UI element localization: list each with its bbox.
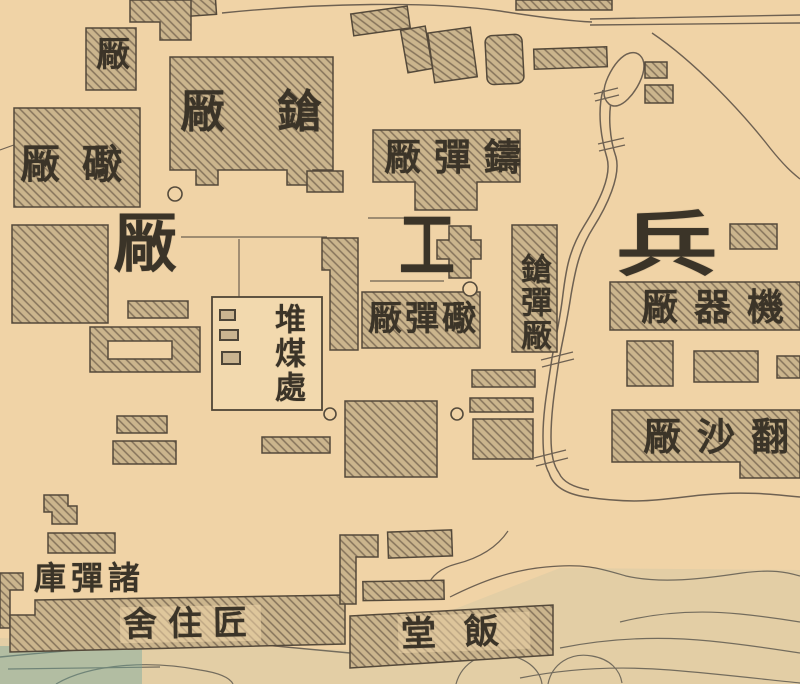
building-bar-magazine (48, 533, 115, 553)
stream-tick-3 (541, 352, 574, 367)
label-small-factory: 厰 (96, 38, 130, 72)
building-top-notched (130, 0, 191, 40)
coal-depot-mark-2 (219, 329, 239, 341)
label-rifle-cartridge-factory: 鎗彈厰 (517, 253, 548, 352)
label-foundry: 厰沙翻 (643, 418, 800, 456)
building-bar-east-2 (470, 398, 533, 412)
label-rifle-factory: 厰鎗 (180, 89, 374, 134)
building-small-ne-2 (645, 85, 673, 103)
label-arsenal-big-left: 厰 (113, 213, 177, 277)
building-thin-bar-bottom (363, 580, 444, 600)
building-top-edge-bar (516, 0, 612, 10)
road-top-right-outer (590, 15, 800, 19)
building-east-square (627, 341, 673, 386)
label-dining-hall: 堂飯 (397, 612, 530, 654)
building-small-l-sw (44, 495, 77, 524)
building-small-bar-left (128, 301, 188, 318)
road-corner-curve (652, 33, 800, 179)
building-east-edge (777, 356, 800, 378)
historical-arsenal-map: 厰 厰鎗 厰礮 厰彈鑄 厰彈礮 鎗彈厰 堆煤處 厰器機 厰沙翻 庫彈諸 舍住匠 … (0, 0, 800, 684)
landmark-circle-3 (324, 408, 336, 420)
coal-depot-mark-1 (219, 309, 236, 321)
label-workmen-quarters: 舍住匠 (120, 605, 262, 643)
landmark-circle-4 (451, 408, 463, 420)
building-small-below-rifle (307, 171, 343, 192)
label-arsenal-big-right: 兵 (616, 210, 718, 280)
building-top-rounded (485, 34, 525, 85)
landmark-circle-1 (168, 187, 182, 201)
label-cast-shell-factory: 厰彈鑄 (384, 139, 534, 176)
landmark-circle-2 (463, 282, 477, 296)
building-top-slanted-3 (428, 27, 478, 82)
road-top-right-inner (590, 23, 800, 25)
label-machine-factory: 厰器機 (641, 289, 800, 326)
building-small-east (730, 224, 777, 249)
building-plain-square-left (12, 225, 108, 323)
building-bar-sw-1 (117, 416, 167, 433)
stream-tick-4 (534, 450, 568, 466)
building-bar-center (262, 437, 330, 453)
building-small-ne-1 (645, 62, 667, 78)
building-square-east (473, 419, 533, 459)
coal-depot-mark-3 (221, 351, 241, 365)
building-bar-bottom-center (388, 530, 453, 558)
label-cannon-factory: 厰礮 (20, 145, 144, 185)
building-bar-east-1 (472, 370, 535, 387)
building-center-bar (322, 238, 358, 350)
stream-east-bank (551, 93, 617, 473)
label-shell-factory: 厰彈礮 (368, 302, 479, 336)
building-bar-sw-2 (113, 441, 176, 464)
building-courtyard (90, 327, 200, 372)
building-center-square (345, 401, 437, 477)
building-top-thin-bar (534, 47, 608, 70)
building-east-rect (694, 351, 758, 382)
label-magazine: 庫彈諸 (34, 562, 145, 594)
label-coal-depot: 堆煤處 (271, 303, 302, 405)
label-arsenal-big-middle: 工 (399, 210, 455, 283)
stream-mouth-inner (559, 473, 589, 490)
stream-head-outline (604, 53, 644, 106)
